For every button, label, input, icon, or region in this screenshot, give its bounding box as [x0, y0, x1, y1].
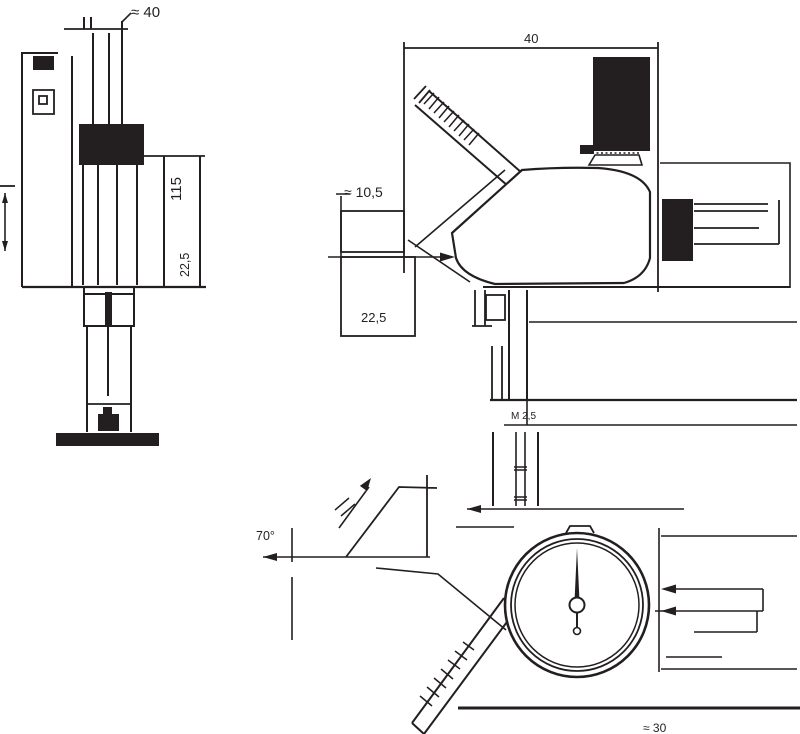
svg-text:≈ 30: ≈ 30 [643, 721, 667, 734]
svg-text:40: 40 [524, 31, 538, 46]
svg-text:22,5: 22,5 [361, 310, 386, 325]
svg-text:22,5: 22,5 [178, 253, 192, 277]
svg-text:115: 115 [168, 177, 185, 201]
svg-text:M 2,5: M 2,5 [511, 411, 536, 422]
svg-text:≈ 40: ≈ 40 [131, 4, 160, 21]
svg-text:70°: 70° [256, 529, 275, 543]
svg-text:≈ 10,5: ≈ 10,5 [344, 184, 383, 200]
